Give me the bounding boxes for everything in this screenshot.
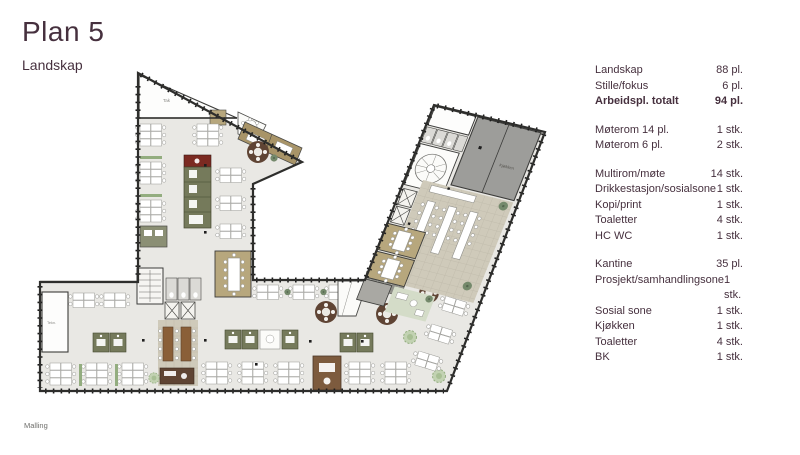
stair-core — [137, 268, 163, 304]
project-room — [313, 356, 341, 390]
technical-room-label: Tekn. — [47, 321, 56, 325]
meeting-room-14 — [215, 251, 251, 297]
floor-plan-svg: Tak — [0, 0, 800, 450]
multiroom-core — [184, 155, 211, 228]
terrace-label: Tak — [163, 98, 171, 103]
toilets — [166, 278, 201, 300]
copy-print-room — [140, 226, 167, 247]
brand-footer: Malling — [24, 421, 48, 430]
floor-plan: Tak — [0, 0, 800, 450]
